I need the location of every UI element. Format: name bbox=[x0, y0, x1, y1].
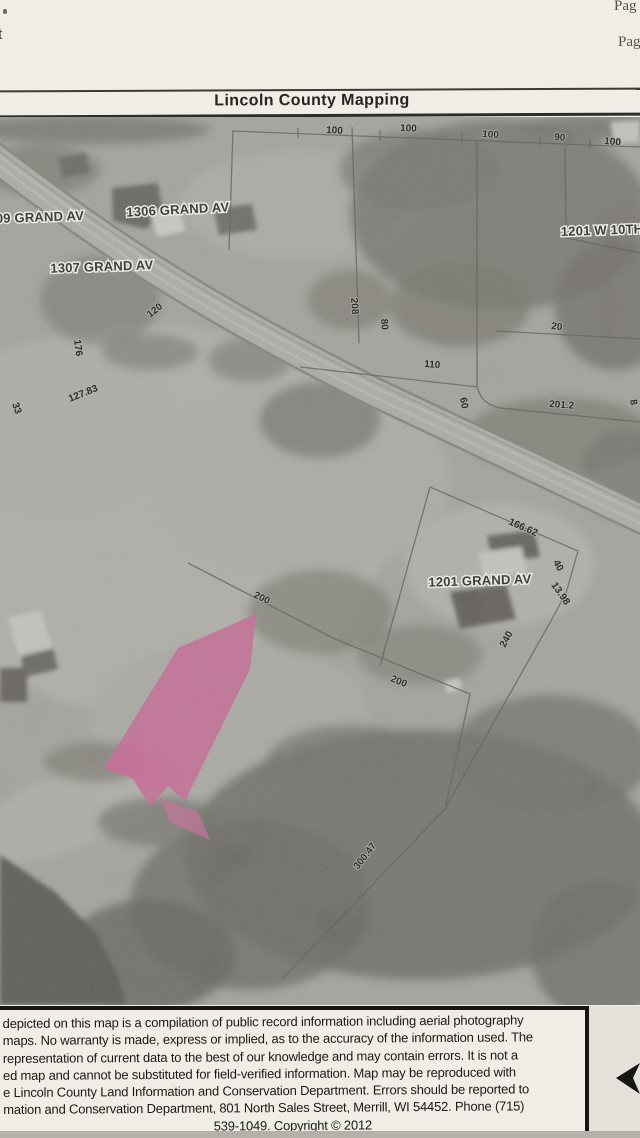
dimension-label: 201.2 bbox=[549, 399, 575, 412]
dimension-label: 80 bbox=[378, 318, 390, 330]
page-speck bbox=[3, 9, 7, 14]
address-label: 09 GRAND AV bbox=[0, 208, 84, 226]
address-label: 1201 W 10TH bbox=[561, 221, 640, 239]
dimension-label: 20 bbox=[551, 321, 564, 333]
cutoff-text-fragment: t bbox=[0, 24, 3, 44]
dimension-label: 100 bbox=[604, 136, 622, 148]
aerial-map: 10010010090100120176127.8333208801106020… bbox=[0, 117, 640, 1005]
disclaimer-top-border bbox=[0, 1006, 589, 1010]
dimension-label: 90 bbox=[554, 132, 566, 144]
scanned-map-page: t Pag Pag Lincoln County Mapping bbox=[0, 0, 640, 1138]
dimension-label: 100 bbox=[400, 123, 417, 135]
aerial-map-canvas: 10010010090100120176127.8333208801106020… bbox=[0, 117, 640, 1005]
dimension-label: 100 bbox=[482, 129, 500, 141]
cursor-arrow-icon bbox=[590, 1050, 640, 1110]
photo-grain bbox=[0, 117, 640, 1005]
page-title: Lincoln County Mapping bbox=[0, 91, 624, 112]
page-number-fragment-top: Pag bbox=[614, 0, 637, 15]
dimension-label: 208 bbox=[348, 297, 360, 315]
scan-edge-shadow bbox=[0, 1131, 640, 1138]
page-number-fragment-bottom: Pag bbox=[618, 34, 640, 51]
dimension-label: 100 bbox=[326, 125, 344, 137]
disclaimer-text: depicted on this map is a compilation of… bbox=[0, 1011, 585, 1136]
dimension-label: 110 bbox=[424, 359, 441, 371]
disclaimer-right-border bbox=[585, 1006, 589, 1138]
